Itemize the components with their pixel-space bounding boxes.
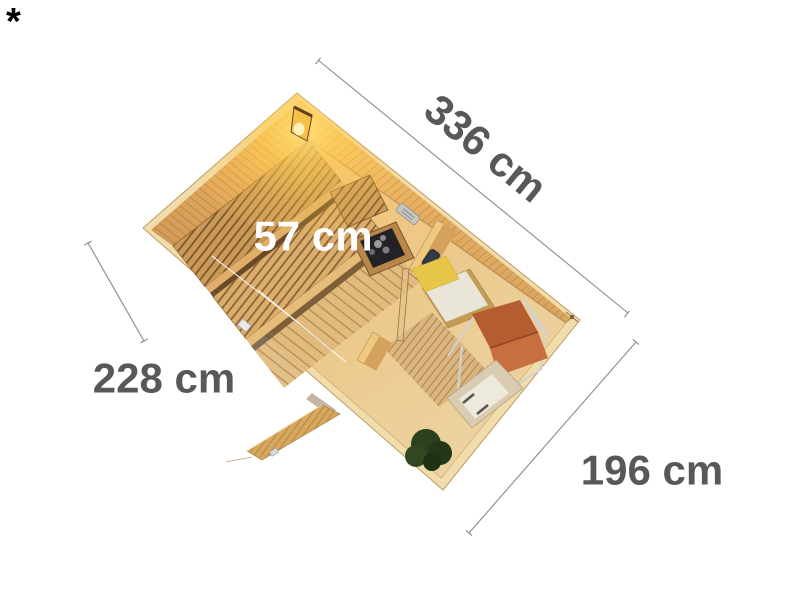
lamp-bulb	[294, 123, 305, 136]
dimension-label-228: 228 cm	[93, 355, 235, 402]
heater-stone	[380, 235, 386, 241]
plant-foliage	[423, 453, 441, 471]
entrance-door-open	[226, 393, 340, 462]
sauna-floorplan-svg: 336 cm 57 cm 228 cm 196 cm *	[0, 0, 800, 600]
footnote-asterisk: *	[6, 1, 21, 43]
dimension-line-228	[85, 241, 148, 343]
tick	[141, 339, 148, 343]
product-dimension-diagram: 336 cm 57 cm 228 cm 196 cm *	[0, 0, 800, 600]
heater-stone	[383, 247, 390, 254]
dimension-label-336: 336 cm	[416, 85, 556, 211]
door-flap	[247, 405, 340, 460]
dimension-label-196: 196 cm	[581, 447, 723, 494]
heater-stone	[374, 240, 382, 248]
dimension-label-57: 57 cm	[253, 213, 372, 260]
door-flap-edge	[226, 457, 252, 462]
tick	[85, 241, 92, 245]
sauna-cabin-render	[143, 30, 580, 490]
